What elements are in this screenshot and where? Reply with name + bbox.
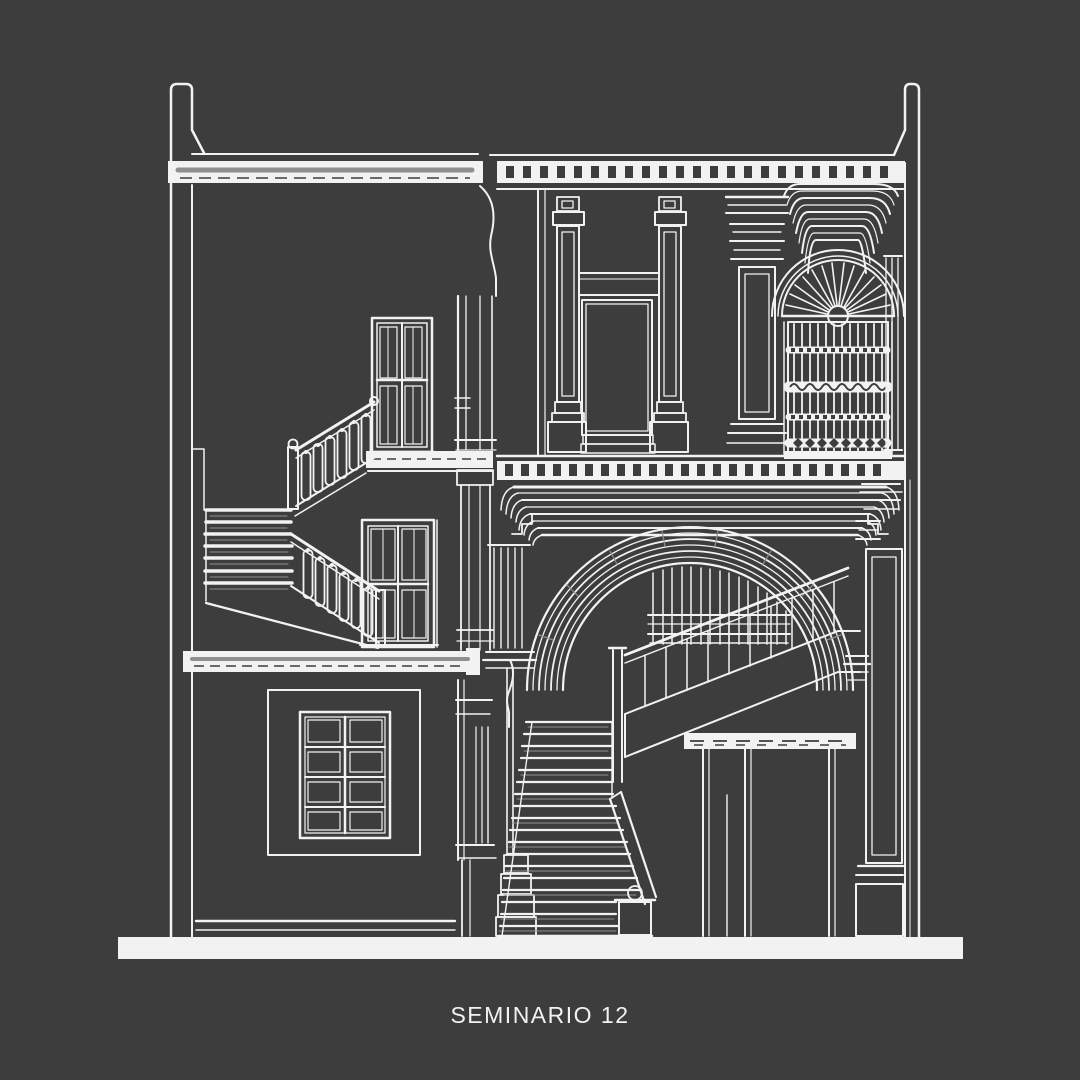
top-floor-slab — [168, 161, 483, 183]
arch-pier — [844, 484, 903, 936]
cut-wall-middle — [457, 470, 493, 650]
architectural-drawing: SEMINARIO 12 — [0, 0, 1080, 1080]
second-floor-slab — [183, 648, 480, 675]
partition-and-beam — [684, 733, 856, 936]
inner-grille — [648, 567, 790, 644]
balcony-slab — [366, 451, 493, 471]
fanlight-window — [772, 250, 904, 326]
upper-french-door — [370, 318, 434, 452]
great-arch — [527, 527, 853, 690]
left-staircase — [205, 397, 385, 648]
baseboard — [196, 921, 455, 930]
mid-dentil-cornice — [497, 456, 905, 480]
left-wall — [171, 84, 204, 937]
upper-pilaster-composition — [538, 190, 688, 455]
ceiling-lines — [192, 154, 894, 155]
entablature — [501, 487, 899, 545]
window-grille — [784, 322, 892, 459]
right-wall — [894, 84, 919, 937]
cut-wall-upper — [455, 186, 496, 450]
caption: SEMINARIO 12 — [0, 1002, 1080, 1029]
fanlight-bay — [772, 184, 904, 459]
upper-right-pilaster — [726, 197, 788, 443]
section-drawing-canvas — [0, 0, 1080, 1080]
ground-line — [118, 937, 963, 959]
ground-window — [268, 690, 420, 855]
